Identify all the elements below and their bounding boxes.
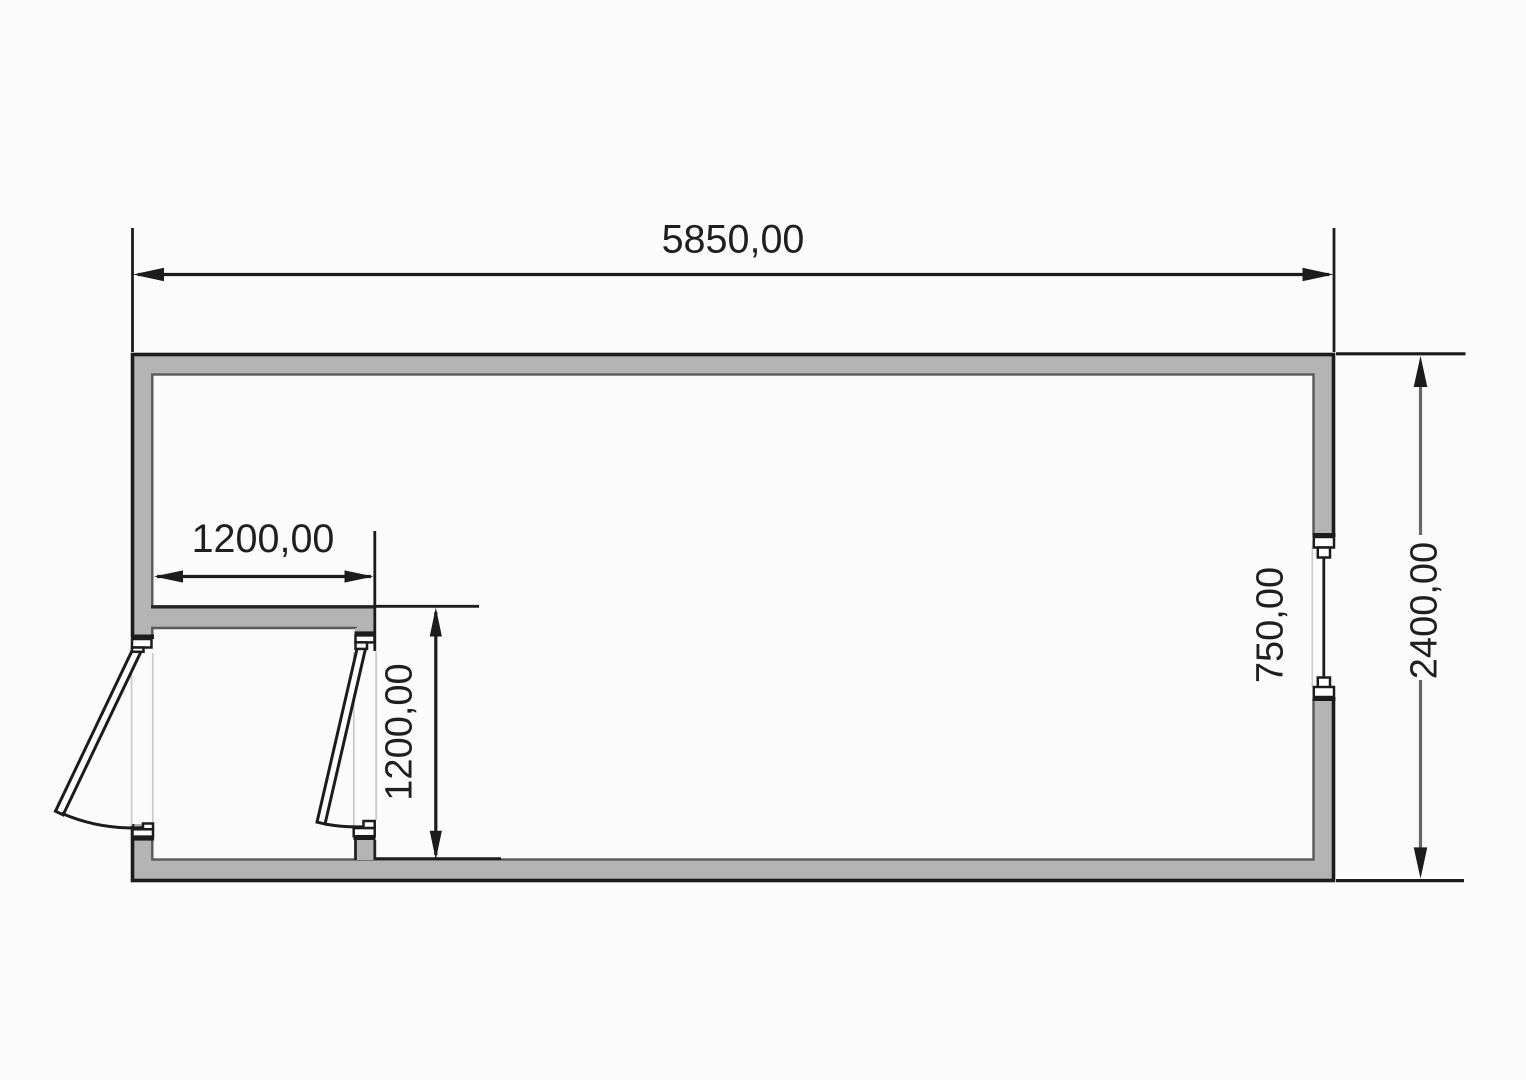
svg-text:2400,00: 2400,00 xyxy=(1404,542,1446,679)
svg-text:750,00: 750,00 xyxy=(1250,567,1292,683)
svg-text:1200,00: 1200,00 xyxy=(379,663,421,800)
svg-text:5850,00: 5850,00 xyxy=(662,218,805,262)
svg-text:1200,00: 1200,00 xyxy=(192,517,335,561)
